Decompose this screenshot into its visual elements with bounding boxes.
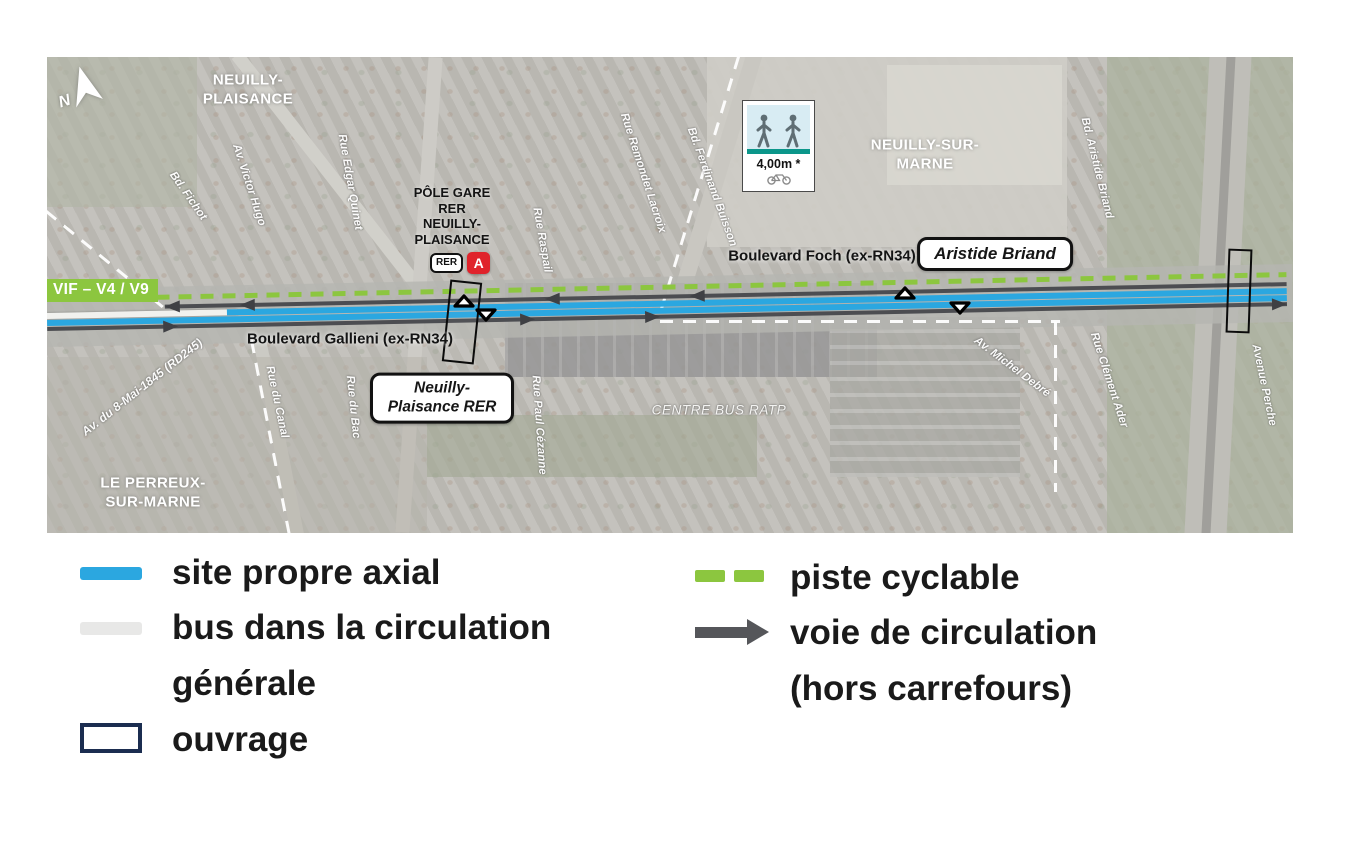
satellite-map: RER A N VIF – V4 / V9 4,00m * (47, 57, 1293, 533)
cyclist-icon (782, 113, 804, 149)
city-label-le-perreux: LE PERREUX-SUR-MARNE (97, 474, 209, 512)
legend-swatch-voie-circulation (695, 627, 747, 638)
aristide-briand-box: Aristide Briand (917, 237, 1073, 271)
vif-route-badge: VIF – V4 / V9 (47, 279, 158, 302)
city-label-neuilly-sur-marne: NEUILLY-SUR-MARNE (867, 136, 983, 174)
bus-stop-marker-down-icon (947, 300, 973, 316)
east-arrow-icon (1272, 298, 1287, 310)
boulevard-foch-label: Boulevard Foch (ex-RN34) (728, 248, 916, 265)
bus-stop-marker-down-icon (473, 307, 499, 323)
rer-badge-group: RER A (430, 252, 490, 274)
rer-line-a-badge: A (467, 252, 490, 274)
legend-label-bus-general: bus dans la circulation générale (172, 600, 617, 712)
station-hub-title: PÔLE GARE RER NEUILLY-PLAISANCE (409, 185, 495, 247)
bus-stop-marker-up-icon (892, 285, 918, 301)
west-arrow-icon (545, 293, 560, 305)
legend-arrow-head-icon (747, 619, 769, 645)
city-label-neuilly-plaisance: NEUILLY-PLAISANCE (192, 71, 304, 109)
ouvrage-east-rect (1226, 249, 1253, 334)
east-arrow-icon (163, 320, 178, 332)
legend-label-voie-circulation: voie de circulation (hors carrefours) (790, 605, 1165, 717)
legend-swatch-bus-general (80, 622, 142, 635)
legend-swatch-site-propre (80, 567, 142, 580)
west-arrow-icon (690, 290, 705, 302)
cycle-width-pictogram: 4,00m * (742, 100, 815, 192)
legend-label-ouvrage: ouvrage (172, 712, 308, 768)
cycle-width-label: 4,00m * (747, 157, 810, 171)
centre-bus-ratp-label: CENTRE BUS RATP (652, 403, 787, 418)
legend-swatch-piste-cyclable (695, 570, 764, 582)
boulevard-gallieni-label: Boulevard Gallieni (ex-RN34) (247, 331, 453, 348)
rer-badge: RER (430, 253, 463, 273)
east-arrow-icon (645, 311, 660, 323)
east-arrow-icon (520, 313, 535, 325)
west-arrow-icon (165, 300, 180, 312)
west-arrow-icon (240, 299, 255, 311)
lane-width-bar (747, 149, 810, 154)
legend-label-site-propre: site propre axial (172, 545, 440, 601)
bicycle-icon (766, 172, 792, 185)
dashed-limit-east (1054, 322, 1057, 492)
neuilly-plaisance-rer-box: Neuilly-Plaisance RER (370, 373, 514, 424)
legend-label-piste-cyclable: piste cyclable (790, 550, 1020, 606)
north-arrow: N (57, 63, 109, 118)
cyclists-pictogram (747, 105, 810, 149)
cyclist-icon (753, 113, 775, 149)
legend-swatch-ouvrage (80, 723, 142, 753)
